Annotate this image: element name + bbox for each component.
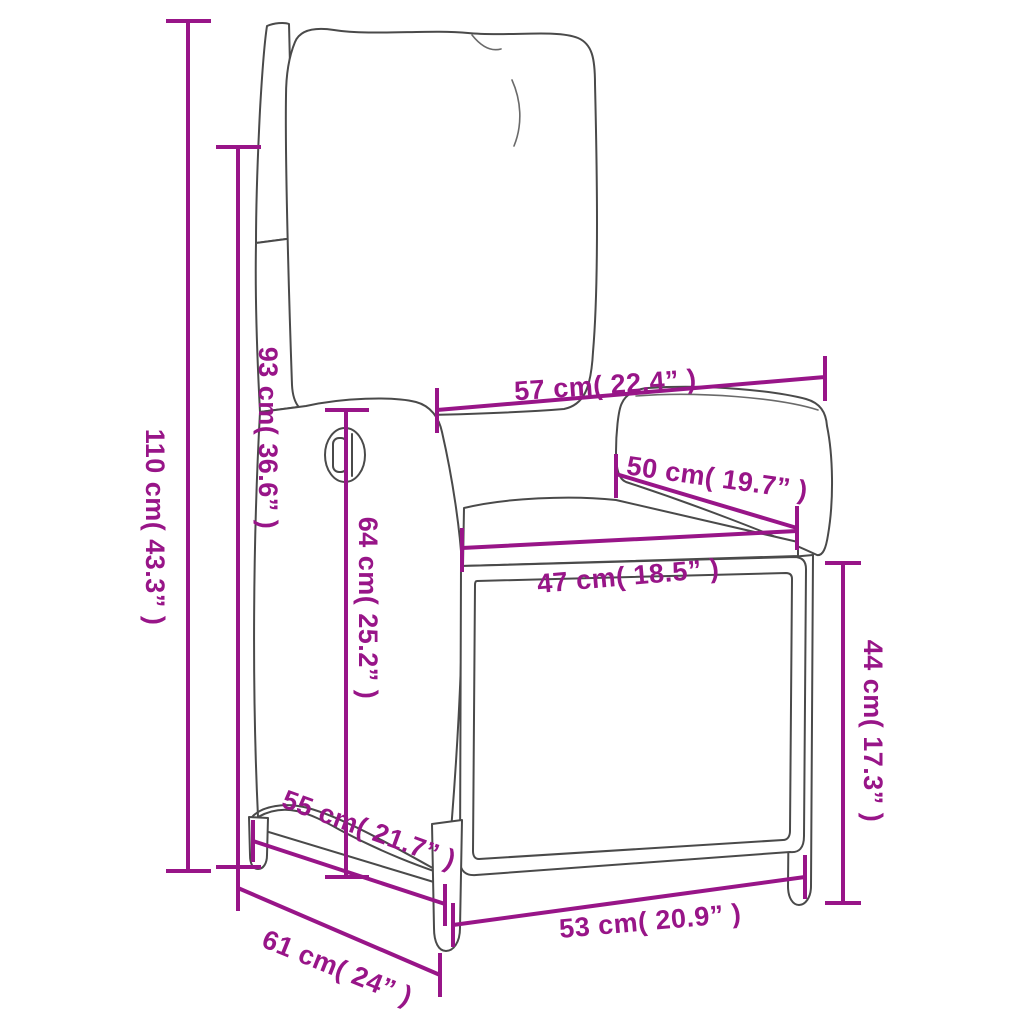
dim-label-44cm: 44 cm( 17.3” ) xyxy=(858,640,888,823)
dim-label-64cm: 64 cm( 25.2” ) xyxy=(353,517,383,700)
dimension-44cm: 44 cm( 17.3” ) xyxy=(825,563,888,903)
headrest-cushion xyxy=(286,29,597,416)
dim-line-110cm xyxy=(166,21,211,871)
dimension-110cm: 110 cm( 43.3” ) xyxy=(140,21,211,871)
dim-line-44cm xyxy=(825,563,861,903)
seat-base xyxy=(460,557,806,875)
dim-label-110cm: 110 cm( 43.3” ) xyxy=(140,429,170,626)
chair-dimension-figure: 110 cm( 43.3” ) 93 cm( 36.6” ) 57 cm( 22… xyxy=(0,0,1024,1024)
dimension-diagram: 110 cm( 43.3” ) 93 cm( 36.6” ) 57 cm( 22… xyxy=(0,0,1024,1024)
dim-label-61cm: 61 cm( 24” ) xyxy=(258,924,417,1011)
dimension-61cm: 61 cm( 24” ) xyxy=(238,867,440,1011)
dim-label-93cm: 93 cm( 36.6” ) xyxy=(253,347,283,530)
